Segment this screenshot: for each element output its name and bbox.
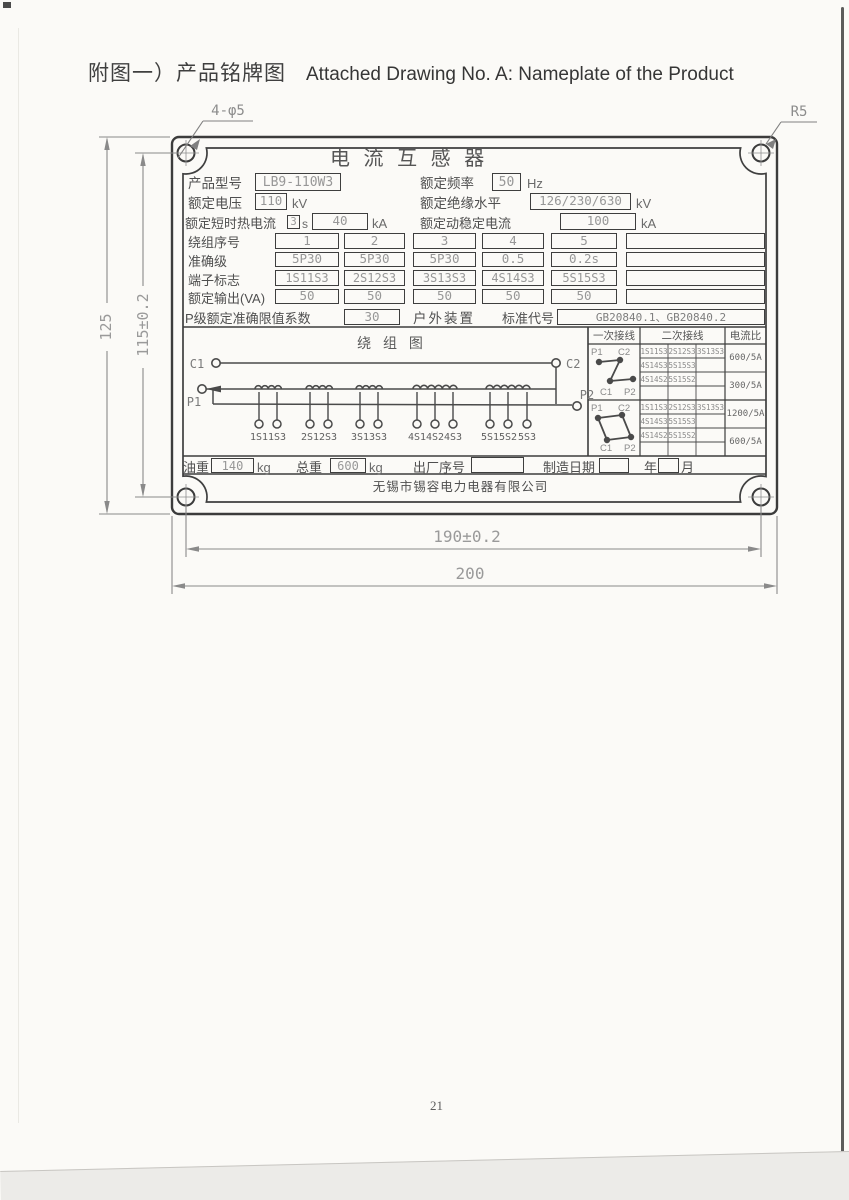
total-weight-box: 600	[330, 458, 366, 473]
conn-header-secondary: 二次接线	[640, 331, 725, 342]
conn-cell	[696, 429, 725, 442]
conn-header-ratio: 电流比	[725, 331, 766, 342]
winding-node-circles	[198, 359, 581, 410]
standard-label: 标准代号	[502, 312, 554, 325]
terminal-label: 5S2	[499, 432, 517, 443]
terminal-label: 5S1	[481, 432, 499, 443]
cell-value: 2	[371, 235, 379, 248]
page-number: 21	[430, 1098, 443, 1114]
oil-weight-label: 油重	[183, 461, 209, 474]
insulation-value-box: 126/230/630	[530, 193, 631, 210]
terminal-mark-cell: 3S13S3	[413, 270, 476, 286]
oil-weight-box: 140	[211, 458, 254, 473]
cell-value: 50	[367, 290, 382, 303]
conn-g1-c2: C2	[618, 348, 630, 358]
conn-g2-p1: P1	[591, 404, 603, 414]
terminal-label: 1S1	[250, 432, 268, 443]
rated-output-cell: 50	[275, 289, 339, 305]
insulation-label: 额定绝缘水平	[420, 197, 501, 211]
terminal-mark-cell: 4S14S3	[482, 270, 544, 286]
model-label: 产品型号	[188, 177, 242, 191]
accuracy-limit-label: P级额定准确限值系数	[185, 312, 311, 325]
terminal-label: 2S1	[301, 432, 319, 443]
rated-output-label: 额定输出(VA)	[188, 292, 265, 305]
frequency-value: 50	[499, 176, 515, 189]
year-label: 年	[644, 461, 657, 474]
standard-value-box: GB20840.1、GB20840.2	[557, 309, 765, 325]
cell-value: 3S13S3	[423, 272, 466, 284]
cell-value: 0.2s	[569, 253, 599, 266]
cell-value: 5	[580, 235, 588, 248]
conn-cell-value: 5S15S2	[668, 432, 695, 440]
month-label: 月	[681, 461, 694, 474]
terminal-label: 4S2	[426, 432, 444, 443]
outdoor-label: 户外装置	[413, 312, 475, 326]
holes-dimension-label: 4-φ5	[211, 103, 245, 119]
height-outer-dimension: 125	[97, 313, 115, 340]
total-weight-unit: kg	[369, 461, 383, 474]
conn-cell-value: 3S13S3	[697, 348, 724, 356]
winding-c2-label: C2	[566, 357, 580, 371]
conn-cell: 3S13S3	[696, 345, 725, 358]
conn-ratio: 600/5A	[725, 428, 766, 456]
winding-diagram-lines	[206, 363, 572, 405]
accuracy-cell: 5P30	[275, 252, 339, 268]
primary-parallel-diagram	[596, 413, 634, 443]
terminal-drops	[259, 392, 527, 420]
conn-cell: 2S12S3	[668, 401, 696, 414]
conn-header-primary: 一次接线	[588, 331, 640, 342]
serial-box	[471, 457, 524, 473]
winding-p2-label: P2	[580, 388, 594, 402]
rated-output-cell: 50	[344, 289, 405, 305]
cell-value: 4	[509, 235, 517, 248]
conn-ratio: 1200/5A	[725, 400, 766, 428]
winding-no-cell: 2	[344, 233, 405, 249]
plate-title: 电 流 互 感 器	[330, 149, 480, 169]
radius-dimension-label: R5	[791, 104, 808, 120]
conn-g1-p1: P1	[591, 348, 603, 358]
accuracy-cell	[626, 252, 765, 268]
conn-cell: 1S11S3	[640, 401, 668, 414]
terminal-labels: 1S1 1S3 2S1 2S3 3S1 3S3 4S1 4S2 4S3 5S1 …	[250, 432, 536, 443]
conn-cell: 1S11S3	[640, 345, 668, 358]
thermal-time-unit: s	[302, 218, 308, 230]
cell-value: 50	[505, 290, 520, 303]
conn-cell: 5S15S3	[668, 359, 696, 372]
cell-value: 5S15S3	[562, 272, 605, 284]
cell-value: 0.5	[502, 253, 525, 266]
conn-cell: 4S14S3	[640, 415, 668, 428]
terminal-mark-label: 端子标志	[188, 274, 240, 287]
conn-ratio: 300/5A	[725, 372, 766, 400]
dynamic-value-box: 100	[560, 213, 636, 230]
conn-cell-value: 4S14S2	[640, 432, 667, 440]
rated-output-cell	[626, 289, 765, 305]
cell-value: 1	[303, 235, 311, 248]
conn-cell: 5S15S2	[668, 373, 696, 386]
terminal-label: 1S3	[268, 432, 286, 443]
conn-ratio-value: 600/5A	[729, 438, 762, 447]
accuracy-cell: 5P30	[344, 252, 405, 268]
dynamic-value: 100	[587, 215, 610, 228]
conn-cell-value: 2S12S3	[668, 348, 695, 356]
terminal-mark-cell: 5S15S3	[551, 270, 617, 286]
winding-p1-label: P1	[187, 395, 201, 409]
winding-no-cell	[626, 233, 765, 249]
thermal-value: 40	[332, 215, 347, 228]
conn-cell: 5S15S2	[668, 429, 696, 442]
cell-value: 2S12S3	[353, 272, 396, 284]
frequency-label: 额定频率	[420, 177, 474, 191]
terminal-label: 5S3	[518, 432, 536, 443]
cell-value: 5P30	[359, 253, 389, 266]
conn-cell: 4S14S2	[640, 429, 668, 442]
insulation-value: 126/230/630	[539, 195, 622, 208]
conn-g1-c1: C1	[600, 388, 612, 398]
thermal-value-box: 40	[312, 213, 368, 230]
cell-value: 50	[299, 290, 314, 303]
total-weight-label: 总重	[296, 461, 322, 474]
winding-no-cell: 5	[551, 233, 617, 249]
terminal-label: 4S1	[408, 432, 426, 443]
thermal-unit: kA	[372, 217, 387, 230]
rated-output-cell: 50	[551, 289, 617, 305]
rated-output-cell: 50	[482, 289, 544, 305]
accuracy-class-label: 准确级	[188, 255, 227, 268]
insulation-unit: kV	[636, 197, 651, 210]
conn-g2-c1: C1	[600, 444, 612, 454]
conn-g1-p2: P2	[624, 388, 636, 398]
oil-weight-unit: kg	[257, 461, 271, 474]
model-value: LB9-110W3	[263, 176, 333, 189]
mfg-date-label: 制造日期	[543, 461, 595, 474]
winding-c1-label: C1	[190, 357, 204, 371]
accuracy-cell: 0.2s	[551, 252, 617, 268]
voltage-unit: kV	[292, 197, 307, 210]
cell-value: 5P30	[292, 253, 322, 266]
terminal-label: 3S3	[369, 432, 387, 443]
accuracy-limit-value: 30	[364, 311, 379, 324]
mfg-year-box	[599, 458, 629, 473]
cell-value: 5P30	[429, 253, 459, 266]
winding-no-cell: 1	[275, 233, 339, 249]
rated-output-cell: 50	[413, 289, 476, 305]
winding-no-cell: 3	[413, 233, 476, 249]
conn-cell: 3S13S3	[696, 401, 725, 414]
primary-series-diagram	[597, 358, 636, 384]
mfg-month-box	[658, 458, 679, 473]
terminal-label: 3S1	[351, 432, 369, 443]
conn-cell-value: 1S11S3	[640, 404, 667, 412]
cell-value: 1S11S3	[285, 272, 328, 284]
thermal-time-box: 3	[287, 215, 300, 229]
height-holes-dimension: 115±0.2	[134, 293, 152, 356]
conn-cell-value: 4S14S3	[640, 362, 667, 370]
conn-cell-value: 5S15S3	[668, 362, 695, 370]
standard-value: GB20840.1、GB20840.2	[596, 312, 726, 323]
conn-cell-value: 3S13S3	[697, 404, 724, 412]
accuracy-limit-box: 30	[344, 309, 400, 325]
conn-g2-p2: P2	[624, 444, 636, 454]
terminal-mark-cell: 2S12S3	[344, 270, 405, 286]
model-value-box: LB9-110W3	[255, 173, 341, 191]
company-name: 无锡市锡容电力电器有限公司	[183, 481, 738, 494]
scan-paper-bottom-edge	[0, 1151, 849, 1200]
conn-g2-c2: C2	[618, 404, 630, 414]
cell-value: 3	[441, 235, 449, 248]
winding-diagram-title: 绕 组 图	[322, 336, 462, 350]
conn-cell-value: 2S12S3	[668, 404, 695, 412]
conn-cell: 4S14S3	[640, 359, 668, 372]
holes-leader	[178, 121, 253, 158]
conn-cell-value: 5S15S2	[668, 376, 695, 384]
conn-cell-value: 1S11S3	[640, 348, 667, 356]
voltage-value-box: 110	[255, 193, 287, 210]
frequency-value-box: 50	[492, 173, 521, 191]
terminal-mark-cell: 1S11S3	[275, 270, 339, 286]
oil-weight-value: 140	[222, 460, 244, 472]
terminal-label: 2S3	[319, 432, 337, 443]
scanned-page: 附图一）产品铭牌图 Attached Drawing No. A: Namepl…	[0, 0, 849, 1200]
conn-ratio-value: 600/5A	[729, 354, 762, 363]
conn-cell: 4S14S2	[640, 373, 668, 386]
winding-no-cell: 4	[482, 233, 544, 249]
cell-value: 4S14S3	[491, 272, 534, 284]
conn-cell-value: 4S14S2	[640, 376, 667, 384]
cell-value: 50	[576, 290, 591, 303]
holes-leader-arrow	[190, 139, 200, 150]
conn-ratio: 600/5A	[725, 344, 766, 372]
thermal-time-value: 3	[290, 217, 296, 228]
conn-cell	[696, 415, 725, 428]
width-holes-dimension: 190±0.2	[433, 527, 500, 546]
terminal-circles	[255, 420, 531, 428]
total-weight-value: 600	[337, 460, 359, 472]
conn-ratio-value: 1200/5A	[727, 410, 765, 419]
conn-cell-value: 4S14S3	[640, 418, 667, 426]
voltage-value: 110	[260, 195, 283, 208]
thermal-current-label: 额定短时热电流	[185, 217, 276, 230]
conn-cell: 2S12S3	[668, 345, 696, 358]
voltage-label: 额定电压	[188, 197, 242, 211]
conn-cell	[696, 373, 725, 386]
terminal-label: 4S3	[444, 432, 462, 443]
serial-label: 出厂序号	[413, 461, 465, 474]
conn-ratio-value: 300/5A	[729, 382, 762, 391]
conn-cell	[696, 359, 725, 372]
cell-value: 50	[437, 290, 452, 303]
conn-cell-value: 5S15S3	[668, 418, 695, 426]
frequency-unit: Hz	[527, 177, 543, 190]
accuracy-cell: 5P30	[413, 252, 476, 268]
winding-no-label: 绕组序号	[188, 236, 240, 249]
dynamic-unit: kA	[641, 217, 656, 230]
accuracy-cell: 0.5	[482, 252, 544, 268]
terminal-mark-cell	[626, 270, 765, 286]
conn-cell: 5S15S3	[668, 415, 696, 428]
width-outer-dimension: 200	[456, 564, 485, 583]
dynamic-current-label: 额定动稳定电流	[420, 217, 511, 230]
